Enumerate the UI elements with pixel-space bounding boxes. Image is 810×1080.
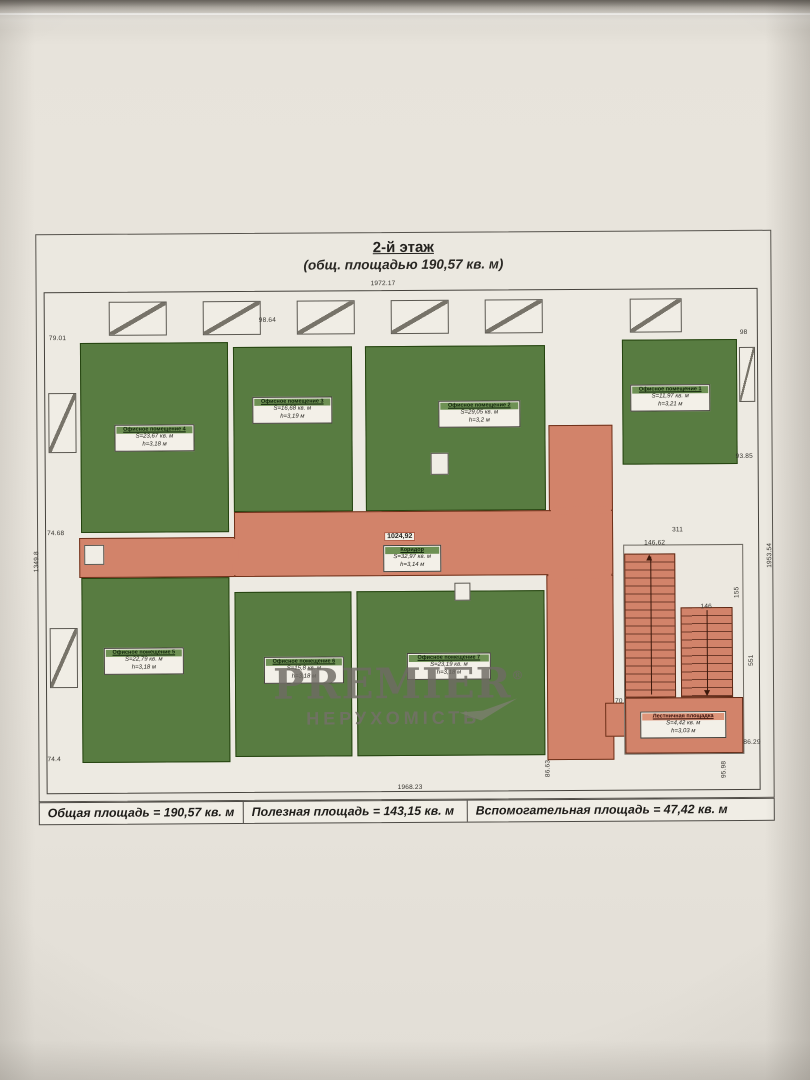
- room-height: h=3,14 м: [385, 562, 439, 570]
- room-label-office-3: Офисное помещение 3 S=16,68 кв. м h=3,19…: [252, 396, 332, 423]
- room-label-office-7: Офисное помещение 7 S=23,19 кв. м h=3,18…: [407, 652, 491, 679]
- stair-arrow-down-icon: [704, 690, 710, 696]
- dimension-top-width: 1972.17: [371, 280, 396, 287]
- window-icon: [50, 628, 78, 688]
- dimension-right-1: 93.85: [736, 453, 753, 460]
- window-icon: [48, 393, 76, 453]
- door-symbol: [431, 453, 449, 475]
- dimension-stair-passage: 70: [615, 698, 623, 705]
- window-icon: [203, 301, 261, 335]
- floor-plan-document: 2-й этаж (общ. площадью 190,57 кв. м) 19…: [0, 0, 810, 1080]
- dimension-left-height: 1349.8: [33, 551, 40, 572]
- window-icon: [630, 298, 682, 332]
- room-label-office-2: Офисное помещение 2 S=29,05 кв. м h=3,2 …: [438, 400, 520, 427]
- window-icon: [391, 300, 449, 334]
- dimension-right-height: 1953.54: [766, 543, 773, 568]
- dimension-stair-flight-right: 146: [701, 603, 712, 610]
- corridor-label: Коридор S=32,97 кв. м h=3,14 м: [383, 545, 441, 572]
- room-office-3: [233, 346, 353, 512]
- room-height: h=3,03 м: [642, 728, 724, 736]
- stair-landing-label: Лестничная площадка S=4,42 кв. м h=3,03 …: [640, 711, 726, 738]
- window-icon: [739, 347, 755, 402]
- dimension-bottom-width: 1968.23: [398, 784, 423, 791]
- total-area-cell: Общая площадь = 190,57 кв. м: [40, 802, 243, 824]
- room-height: h=3,18 м: [117, 441, 193, 449]
- room-label-office-4: Офисное помещение 4 S=23,67 кв. м h=3,18…: [114, 424, 194, 451]
- door-symbol: [454, 583, 470, 601]
- corridor-lower-shaft: [546, 575, 614, 760]
- corridor-seam: [232, 539, 238, 575]
- window-icon: [485, 299, 543, 333]
- dimension-right-2: 98: [740, 329, 748, 336]
- dimension-stair-width: 311: [672, 526, 683, 533]
- dimension-bottom-v1: 86.63: [544, 760, 551, 777]
- window-icon: [297, 300, 355, 334]
- room-height: h=3,18 м: [409, 669, 489, 677]
- stair-rail: [707, 610, 709, 694]
- dimension-bottom-v2: 95.98: [720, 761, 727, 778]
- dimension-stair-v1: 155: [733, 586, 740, 597]
- floor-title: 2-й этаж: [113, 237, 693, 258]
- photo-of-floor-plan: 2-й этаж (общ. площадью 190,57 кв. м) 19…: [0, 0, 810, 1080]
- room-height: h=3,18 м: [266, 673, 342, 681]
- room-label-office-1: Офисное помещение 1 S=11,97 кв. м h=3,21…: [630, 384, 710, 411]
- window-icon: [109, 301, 167, 335]
- dimension-stair-v2: 551: [748, 654, 755, 665]
- stair-rail: [650, 556, 652, 694]
- auxiliary-area-cell: Вспомогательная площадь = 47,42 кв. м: [467, 799, 774, 822]
- room-height: h=3,2 м: [440, 417, 518, 425]
- stair-flight-down: [681, 607, 734, 697]
- room-office-2: [365, 345, 546, 511]
- dimension-left-3: 74.4: [47, 756, 60, 763]
- title-block: 2-й этаж (общ. площадью 190,57 кв. м): [113, 237, 693, 274]
- corridor-seam: [551, 507, 611, 514]
- dimension-right-3: 86.29: [743, 739, 760, 746]
- room-height: h=3,21 м: [632, 401, 708, 409]
- dimension-left-2: 74.68: [47, 530, 64, 537]
- corridor-seam: [548, 571, 611, 579]
- dimension-stair-flight-left: 146,62: [644, 539, 665, 546]
- stair-flight-up: [624, 553, 676, 697]
- room-height: h=3,19 м: [254, 413, 330, 421]
- corridor-length-dim: 1024,92: [384, 532, 415, 541]
- shaft-symbol: [84, 545, 104, 565]
- stair-arrow-up-icon: [646, 554, 652, 560]
- area-summary-bar: Общая площадь = 190,57 кв. м Полезная пл…: [39, 798, 775, 825]
- useful-area-cell: Полезная площадь = 143,15 кв. м: [243, 801, 467, 823]
- corridor-upper-stub: [548, 425, 613, 511]
- room-label-office-5: Офисное помещение 5 S=22,79 кв. м h=3,18…: [104, 647, 184, 674]
- dimension-left-1: 79.01: [49, 335, 66, 342]
- room-height: h=3,18 м: [106, 664, 182, 672]
- room-label-office-6: Офисное помещение 6 S=15,8 кв. м h=3,18 …: [264, 656, 344, 683]
- dimension-top-segment: 98.64: [259, 317, 276, 324]
